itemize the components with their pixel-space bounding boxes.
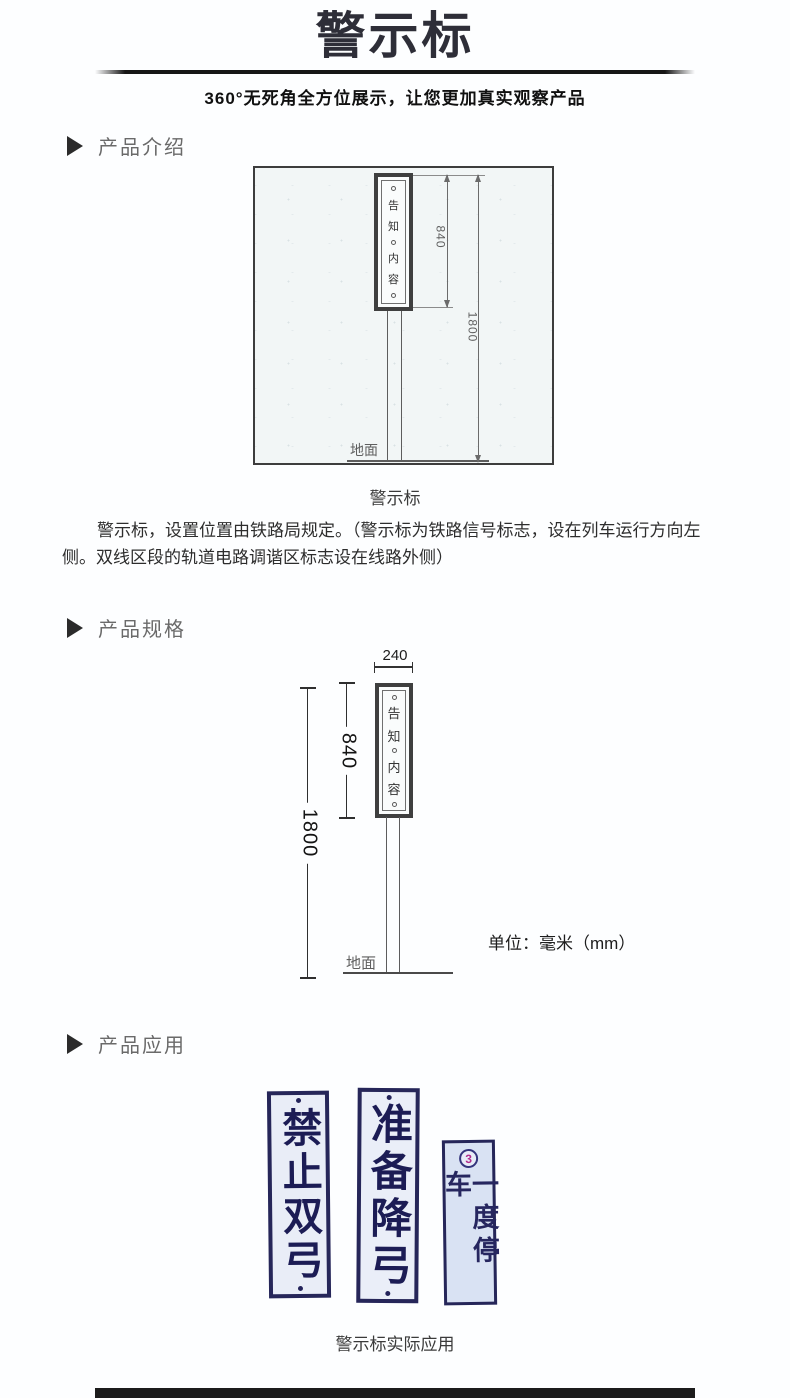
sign-post-drawing [387,311,402,461]
ground-label: 地面 [350,440,378,460]
section-app-label: 产品应用 [98,1029,186,1058]
intro-paragraph: 警示标，设置位置由铁路局规定。（警示标为铁路信号标志，设在列车运行方向左侧。双线… [62,517,730,571]
section-app-header: 产品应用 [67,1029,186,1058]
circled-3-icon: 3 [459,1149,478,1168]
sign-photo-stop-once: 3 一度停车 [442,1140,497,1306]
triangle-bullet-icon [67,1034,83,1054]
arrow-up-icon [475,174,481,182]
board-char: 容 [388,271,399,287]
section-spec-label: 产品规格 [98,613,186,642]
dimension-line-1800: 1800 [478,175,479,462]
tick-icon [339,682,355,684]
mounting-hole-icon [391,240,396,245]
board-char: 告 [387,703,400,722]
page-subtitle: 360°无死角全方位展示，让您更加真实观察产品 [0,84,790,109]
sign-text: 一度停车 [442,1170,498,1300]
unit-note: 单位：毫米（mm） [488,929,635,954]
sign-board-face: 告 知 内 容 [382,690,406,811]
mounting-dot-icon [386,1095,391,1100]
board-char: 知 [387,726,400,745]
sign-text: 禁止双弓 [278,1106,320,1282]
dimension-value: 1800 [298,803,321,864]
sign-post-drawing [386,817,400,973]
section-intro-header: 产品介绍 [67,131,186,160]
sign-board-drawing: 告 知 内 容 [374,173,413,311]
arrow-down-icon [475,455,481,463]
dimension-value: 840 [337,726,360,774]
board-char: 告 [388,197,399,213]
tick-icon [300,687,316,689]
dimension-line-840: 840 [346,683,347,818]
page-title: 警示标 [0,6,790,66]
application-caption: 警示标实际应用 [0,1330,790,1355]
spec-diagram: 240 告 知 内 容 地面 840 1800 单位：毫米（mm） [280,645,680,990]
sign-photo-no-double-pantograph: 禁止双弓 [267,1091,331,1299]
board-char: 容 [387,779,400,798]
arrow-down-icon [444,300,450,308]
sign-text: 准备降弓 [366,1101,409,1289]
product-detail-page: 警示标 360°无死角全方位展示，让您更加真实观察产品 产品介绍 告 知 内 容… [0,0,790,1398]
board-char: 知 [388,218,399,234]
section-spec-header: 产品规格 [67,613,186,642]
sign-board-face: 告 知 内 容 [381,180,406,304]
dimension-line-840: 840 [447,175,448,307]
intro-diagram: 告 知 内 容 地面 840 1800 [253,166,554,465]
mounting-hole-icon [391,293,396,298]
mounting-hole-icon [391,186,396,191]
mounting-dot-icon [297,1286,302,1291]
section-intro-label: 产品介绍 [98,131,186,160]
board-char: 内 [387,757,400,776]
dimension-value: 1800 [465,312,479,343]
sign-board-drawing: 告 知 内 容 [375,683,413,818]
arrow-up-icon [444,174,450,182]
sign-photo-prepare-lower-pantograph: 准备降弓 [356,1088,419,1303]
triangle-bullet-icon [67,618,83,638]
intro-diagram-caption: 警示标 [0,484,790,509]
tick-icon [300,977,316,979]
board-char: 内 [388,250,399,266]
ground-label: 地面 [346,952,376,973]
tick-icon [339,817,355,819]
mounting-dot-icon [385,1291,390,1296]
mounting-hole-icon [392,695,397,700]
mounting-hole-icon [392,802,397,807]
dimension-value: 840 [434,225,448,248]
triangle-bullet-icon [67,136,83,156]
badge-number: 3 [465,1152,472,1164]
footer-bar [95,1388,695,1398]
dimension-line-1800: 1800 [307,688,308,978]
mounting-dot-icon [295,1098,300,1103]
mounting-hole-icon [392,748,397,753]
title-divider [95,70,695,74]
ground-line [347,460,489,462]
dimension-bracket-240 [374,662,413,673]
